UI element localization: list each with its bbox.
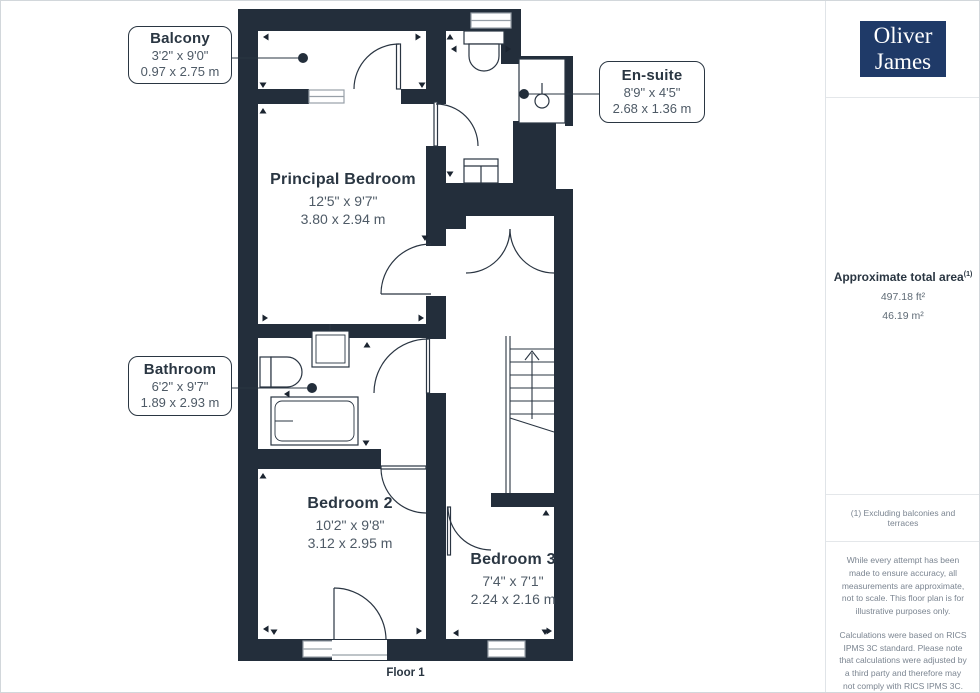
cupboard-double-doors	[466, 229, 554, 273]
bathroom-door	[374, 339, 430, 393]
room-name: En-suite	[604, 67, 700, 84]
disclaimer-paragraph-1: While every attempt has been made to ens…	[839, 554, 967, 618]
room-dimension-metric: 3.80 x 2.94 m	[248, 210, 438, 228]
disclaimer-section: While every attempt has been made to ens…	[826, 542, 980, 692]
total-area-title: Approximate total area(1)	[834, 270, 973, 284]
floor-label: Floor 1	[238, 667, 573, 679]
bathroom-toilet-icon	[260, 357, 302, 387]
room-dimension-imperial: 3'2" x 9'0"	[133, 48, 227, 64]
room-dimension-metric: 1.89 x 2.93 m	[133, 395, 227, 411]
bedroom2-balcony-door	[334, 588, 386, 640]
total-area-metric: 46.19 m²	[882, 310, 923, 322]
room-label-principal-bedroom: Principal Bedroom 12'5" x 9'7" 3.80 x 2.…	[248, 171, 438, 228]
oliver-james-logo: Oliver James	[860, 21, 946, 77]
balcony-door	[354, 44, 401, 89]
room-dimension-imperial: 7'4" x 7'1"	[431, 572, 595, 590]
total-area-section: Approximate total area(1) 497.18 ft² 46.…	[826, 98, 980, 495]
disclaimer-paragraph-2: Calculations were based on RICS IPMS 3C …	[839, 629, 967, 693]
balcony-leader-dot	[298, 53, 308, 63]
bedroom3-door	[448, 507, 492, 555]
logo-line-1: Oliver	[874, 23, 933, 49]
floorplan-page: Balcony 3'2" x 9'0" 0.97 x 2.75 m En-sui…	[0, 0, 980, 693]
room-name: Principal Bedroom	[248, 171, 438, 189]
ensuite-door	[434, 102, 478, 146]
room-dimension-imperial: 8'9" x 4'5"	[604, 85, 700, 101]
room-callout-ensuite: En-suite 8'9" x 4'5" 2.68 x 1.36 m	[599, 61, 705, 123]
total-area-imperial: 497.18 ft²	[881, 291, 925, 303]
room-dimension-metric: 0.97 x 2.75 m	[133, 64, 227, 80]
info-sidebar: Oliver James Approximate total area(1) 4…	[825, 1, 980, 692]
room-dimension-imperial: 6'2" x 9'7"	[133, 379, 227, 395]
logo-line-2: James	[875, 49, 931, 75]
total-area-footnote-ref: (1)	[964, 271, 973, 278]
total-area-title-text: Approximate total area	[834, 270, 964, 284]
logo-section: Oliver James	[826, 1, 980, 98]
principal-bedroom-door	[381, 244, 431, 294]
room-label-bedroom-2: Bedroom 2 10'2" x 9'8" 3.12 x 2.95 m	[261, 495, 439, 552]
area-footnote: (1) Excluding balconies and terraces	[826, 495, 980, 542]
room-dimension-metric: 3.12 x 2.95 m	[261, 534, 439, 552]
room-dimension-imperial: 10'2" x 9'8"	[261, 516, 439, 534]
stairs-up-arrow-icon	[525, 351, 539, 419]
room-callout-bathroom: Bathroom 6'2" x 9'7" 1.89 x 2.93 m	[128, 356, 232, 416]
bedroom2-door-opening	[332, 640, 387, 660]
room-label-bedroom-3: Bedroom 3 7'4" x 7'1" 2.24 x 2.16 m	[431, 551, 595, 608]
room-dimension-imperial: 12'5" x 9'7"	[248, 192, 438, 210]
room-name: Bathroom	[133, 361, 227, 378]
ensuite-basin-icon	[464, 159, 498, 183]
ensuite-toilet-icon	[464, 31, 504, 71]
room-name: Bedroom 2	[261, 495, 439, 513]
bathtub-icon	[271, 397, 358, 445]
room-dimension-metric: 2.24 x 2.16 m	[431, 590, 595, 608]
stairs	[506, 336, 554, 493]
bathroom-leader-dot	[307, 383, 317, 393]
room-callout-balcony: Balcony 3'2" x 9'0" 0.97 x 2.75 m	[128, 26, 232, 84]
ensuite-leader-dot	[519, 89, 529, 99]
room-name: Bedroom 3	[431, 551, 595, 569]
room-dimension-metric: 2.68 x 1.36 m	[604, 101, 700, 117]
bathroom-sink-icon	[312, 324, 349, 367]
room-name: Balcony	[133, 30, 227, 47]
